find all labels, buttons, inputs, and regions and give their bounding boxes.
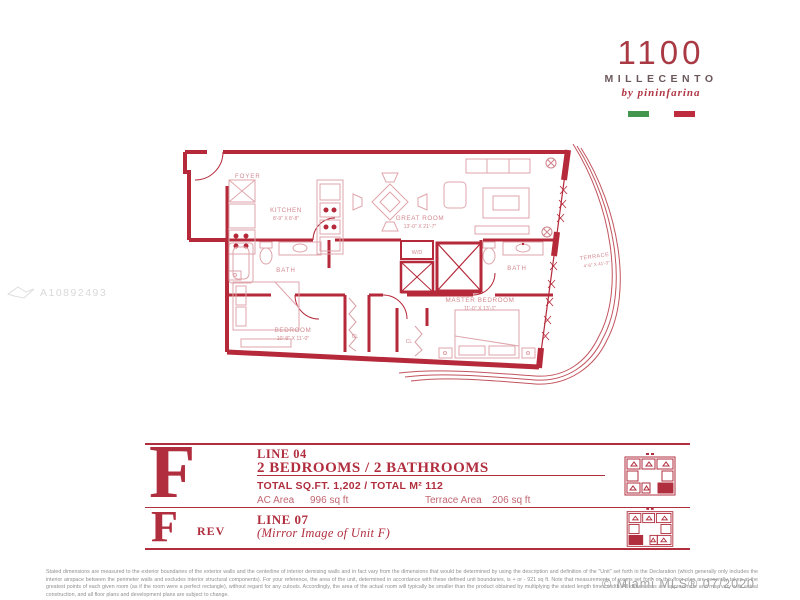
bedroom-dim: 10'-8" X 11'-0" [277,336,310,342]
terrace-area-value: 206 sq ft [492,495,530,506]
brand-logo: 1100 MILLECENTO by pininfarina [596,36,726,117]
kitchen-label: KITCHEN [270,207,302,214]
closet2-label: CL [406,339,413,345]
logo-number: 1100 [596,36,726,69]
terrace-area-label: Terrace Area [425,495,492,506]
watermark-id: A10892493 [40,287,107,299]
foyer-label: FOYER [235,174,261,180]
ac-area-label: AC Area [257,495,310,506]
unit-f-rev-line: LINE 07 [257,508,605,527]
mls-credit: © Miami MLS® 07/2020 [602,577,755,591]
bedroom-label: BEDROOM [275,327,312,334]
unit-f-area-breakdown: AC Area 996 sq ft Terrace Area 206 sq ft [257,495,605,506]
laundry-label: W/D [412,250,423,256]
unit-f-row: F LINE 04 2 BEDROOMS / 2 BATHROOMS TOTAL… [145,445,690,508]
terrace-dim: 4'-6" X 41'-3" [583,260,610,269]
terrace-sliding-doors [539,150,568,368]
flag-red-bar [674,111,695,117]
living-room-furniture [444,159,530,234]
bath1-fixtures [229,242,321,283]
floorplan-sheet: 1100 MILLECENTO by pininfarina A10892493 [0,0,800,600]
unit-f-total-area: TOTAL SQ.FT. 1,202 / TOTAL M² 112 [257,476,605,492]
mls-watermark: A10892493 [6,284,107,302]
kitchen-dim: 8'-9" X 8'-8" [273,216,299,222]
light-fixture-icons [542,158,556,237]
master-bedroom-label: MASTER BEDROOM [446,297,515,304]
master-bedroom-dim: 11'-0" X 13'-1" [464,306,497,312]
unit-f-rev-letter: F [151,508,178,546]
great-room-label: GREAT ROOM [396,215,444,222]
logo-byline: by pininfarina [596,87,726,99]
unit-f-rev-subtitle: (Mirror Image of Unit F) [257,527,605,541]
unit-f-details: LINE 04 2 BEDROOMS / 2 BATHROOMS TOTAL S… [257,445,605,506]
bath2-fixtures [483,242,543,264]
elevator-core [401,241,481,292]
unit-f-header: LINE 04 2 BEDROOMS / 2 BATHROOMS [257,445,605,476]
unit-info-table: F LINE 04 2 BEDROOMS / 2 BATHROOMS TOTAL… [145,443,690,550]
master-bedroom-furniture [439,310,535,358]
great-room-dim: 13'-0" X 21'-7" [404,224,437,230]
unit-f-rev-details: LINE 07 (Mirror Image of Unit F) [257,508,605,541]
flag-green-bar [628,111,649,117]
keyplan-unit-f [622,453,678,499]
exterior-walls [185,152,568,367]
italian-flag-bars [596,111,726,117]
closet-bifold-doors [349,298,422,356]
closet1-label: CL [352,334,359,340]
dining-set [353,173,427,231]
ac-area-value: 996 sq ft [310,495,425,506]
bath1-label: BATH [276,268,296,274]
floorplan-drawing: FOYER KITCHEN 8'-9" X 8'-8" GREAT ROOM 1… [183,140,623,400]
unit-f-configuration: 2 BEDROOMS / 2 BATHROOMS [257,461,605,477]
logo-name: MILLECENTO [596,73,726,85]
bath2-label: BATH [507,266,527,272]
keyplan-unit-f-rev [622,508,678,550]
unit-f-letter: F [149,441,195,503]
watermark-bird-icon [6,284,36,302]
unit-f-rev-row: F REV LINE 07 (Mirror Image of Unit F) [145,508,690,550]
unit-f-rev-suffix: REV [197,524,225,539]
